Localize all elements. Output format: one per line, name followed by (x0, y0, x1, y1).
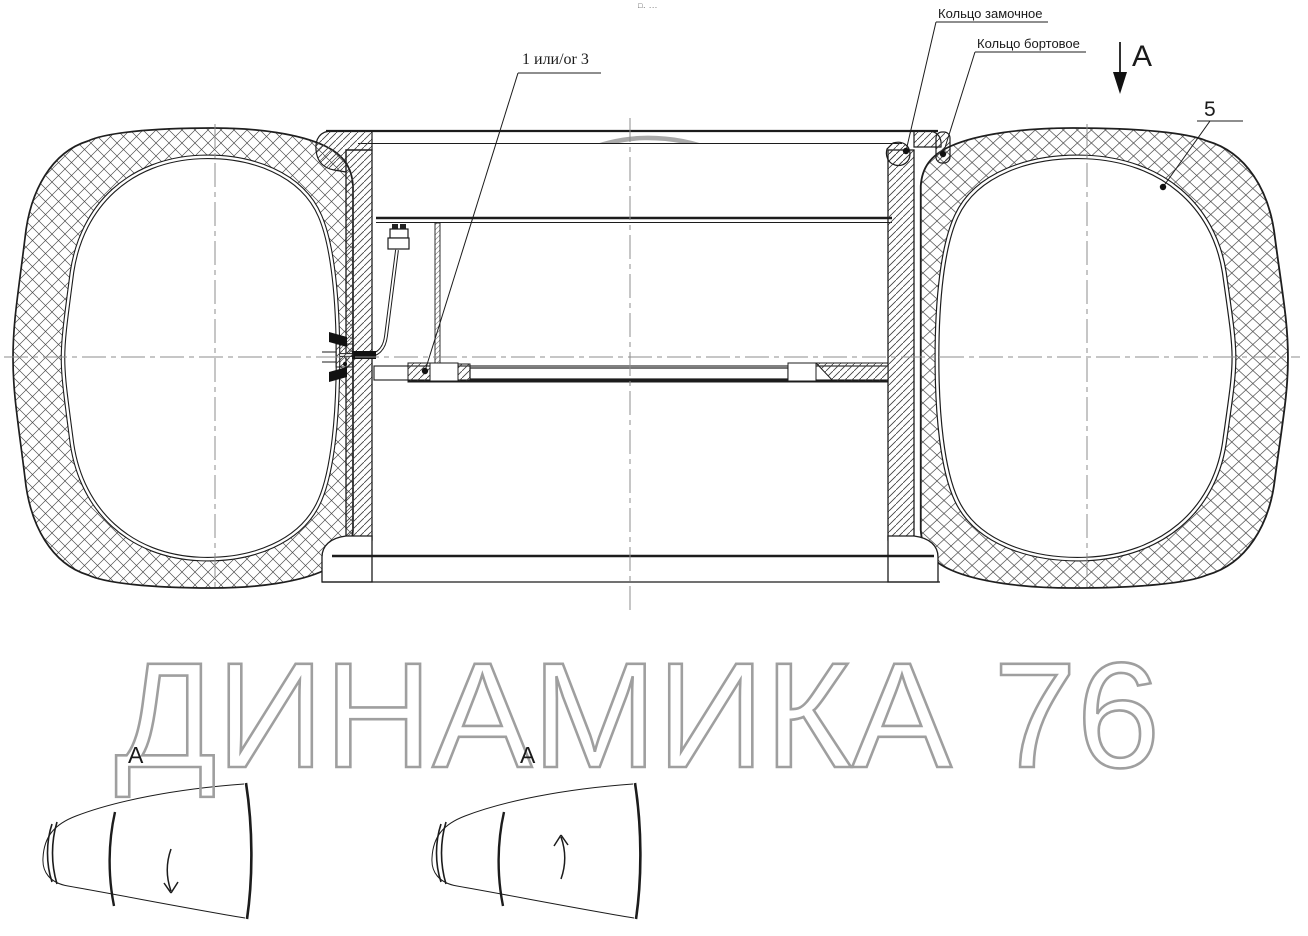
valve-nut (388, 238, 409, 249)
valve-cap (390, 229, 408, 238)
rotation-arrow-up (554, 835, 568, 879)
watermark-text: ДИНАМИКА 76 (115, 631, 1160, 799)
bead-ring-part (936, 132, 950, 163)
tiny-sheet-marks: □. ... (638, 3, 658, 10)
technical-drawing: ДИНАМИКА 76 (0, 0, 1308, 936)
rim-partition (435, 223, 440, 363)
section-marker-letter: A (1132, 42, 1152, 72)
rotation-arrow-down (164, 849, 178, 893)
spacer-band (374, 363, 888, 382)
view-a-right-label: A (520, 743, 535, 767)
right-tire (921, 128, 1288, 588)
rim-left-bottom-flange (322, 536, 372, 582)
callout-lock-ring: Кольцо замочное (938, 7, 1043, 21)
view-a-left (43, 783, 251, 919)
view-a-right (432, 783, 640, 919)
callout-bead-ring: Кольцо бортовое (977, 37, 1080, 51)
drawing-sheet: ДИНАМИКА 76 □. ... Кольцо замочное Кольц… (0, 0, 1308, 936)
valve-cap-nub-left (392, 224, 398, 229)
left-tire (13, 128, 353, 588)
callout-item-5: 5 (1204, 99, 1216, 121)
rim-right-bottom-flange (888, 536, 938, 582)
callout-item-1-or-3: 1 или/or 3 (522, 53, 589, 67)
section-arrow (1113, 42, 1127, 94)
view-a-left-label: A (128, 743, 143, 767)
rim-right-wall (888, 150, 914, 540)
valve-cap-nub-right (400, 224, 406, 229)
